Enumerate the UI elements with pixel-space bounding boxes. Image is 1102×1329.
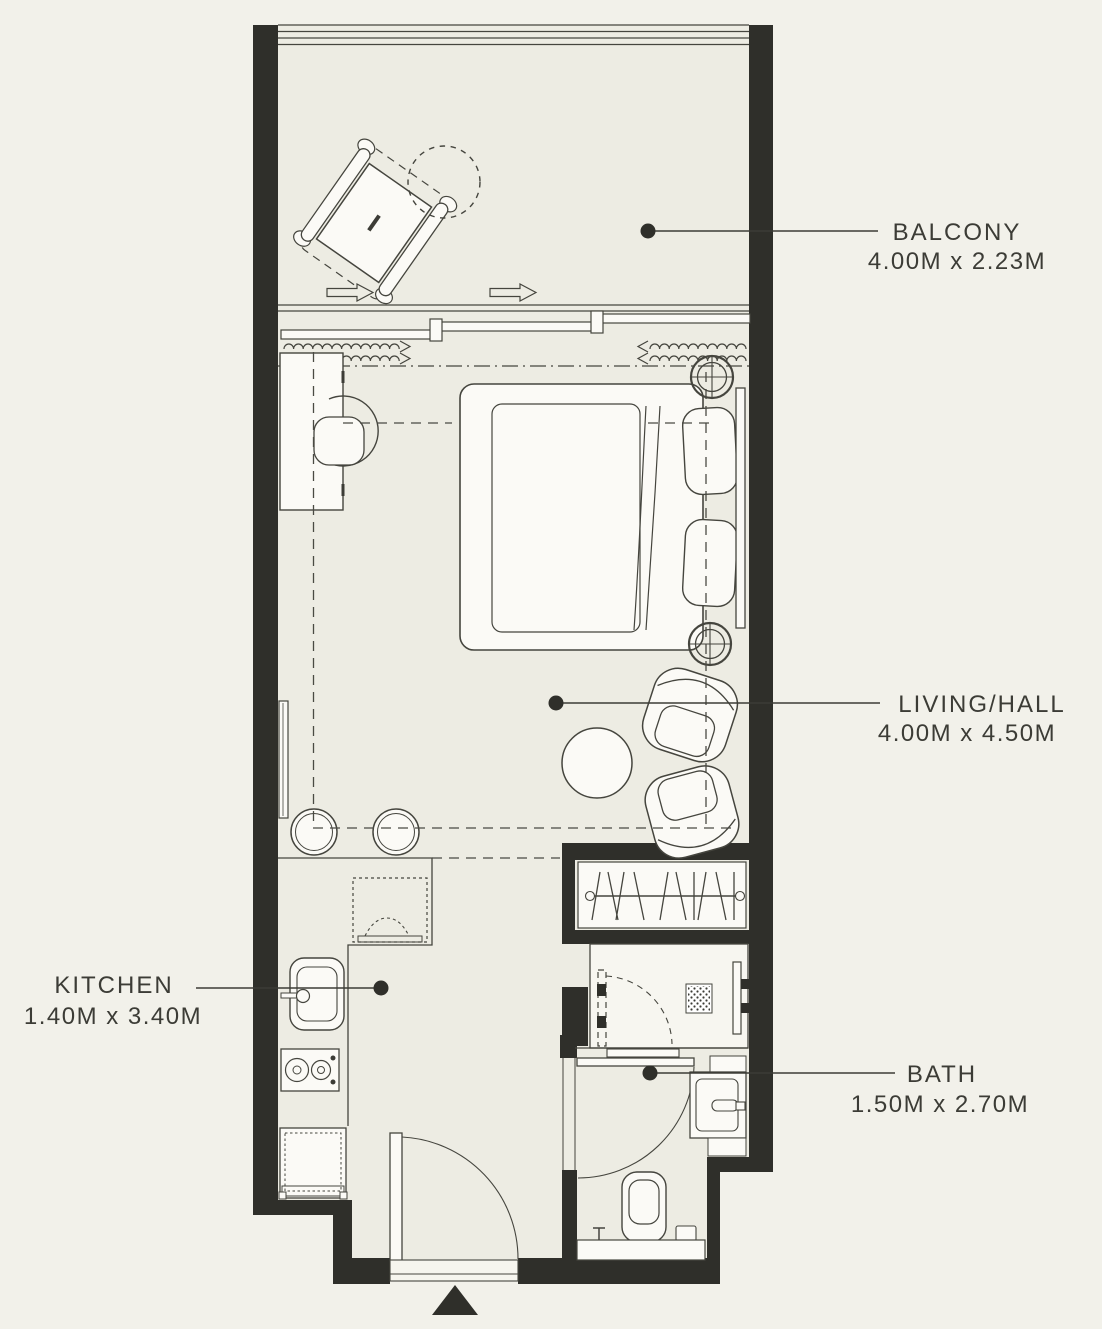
pillow-symbol [682,519,738,608]
wardrobe-symbol [578,862,746,928]
toilet-symbol [622,1172,666,1242]
wall-wardrobe-shower [562,930,749,944]
entry-direction-triangle-icon [432,1285,478,1315]
sink-symbol [281,958,344,1030]
room-label-living-hall: LIVING/HALL [898,691,1065,718]
wall-bath-left [562,1170,577,1262]
room-label-bath: BATH [907,1061,977,1088]
bath-shelf [577,1240,705,1260]
threshold [390,1260,518,1281]
wall-bath-right [707,1172,720,1284]
wall-bath-step [707,1157,773,1172]
washbasin-symbol [690,1072,746,1138]
room-dims-balcony: 4.00M x 2.23M [868,248,1046,275]
cooktop-symbol [281,1049,339,1091]
leader-dot [374,981,389,996]
bath-door-symbol [577,1058,694,1066]
floor-plan-page: BALCONY 4.00M x 2.23M LIVING/HALL 4.00M … [0,0,1102,1329]
wall-right [749,25,773,1157]
leader-dot [549,696,564,711]
room-dims-kitchen: 1.40M x 3.40M [24,1003,202,1030]
bed-symbol [460,384,745,650]
headboard-symbol [736,388,745,628]
wall-bottom-left-step [333,1215,352,1260]
wall-bottom-left-step [253,1200,352,1215]
threshold [607,1049,679,1057]
shower-symbol [590,944,749,1048]
wall-wardrobe-left [562,860,575,930]
leader-dot [643,1066,658,1081]
wall-bottom-entry-left [333,1258,390,1284]
tv-panel-symbol [279,701,288,818]
wall-left [253,25,278,1215]
wall-bottom-entry-right [518,1258,720,1284]
pillow-symbol [682,407,738,496]
leader-dot [641,224,656,239]
ceiling-light-icon [691,356,733,398]
tissue-box-symbol [676,1226,696,1241]
wall-bath-post [560,1035,577,1058]
floor-plan-drawing: BALCONY 4.00M x 2.23M LIVING/HALL 4.00M … [0,0,1102,1329]
refrigerator-symbol [279,1128,347,1199]
room-label-kitchen: KITCHEN [54,972,173,999]
coffee-table-symbol [562,728,632,798]
room-label-balcony: BALCONY [893,219,1022,246]
glass-panel-symbol [733,962,741,1034]
room-dims-living-hall: 4.00M x 4.50M [878,720,1056,747]
ceiling-light-icon [689,623,731,665]
room-dims-bath: 1.50M x 2.70M [851,1091,1029,1118]
